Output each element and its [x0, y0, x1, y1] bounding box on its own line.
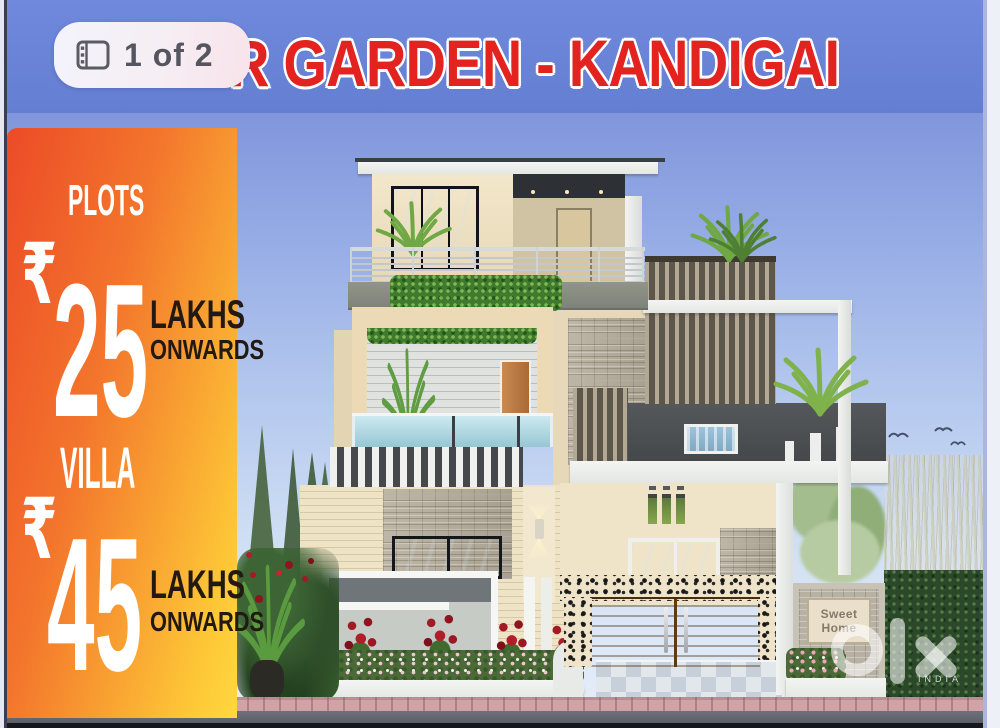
right-gutter [987, 0, 1000, 728]
olx-watermark-logo: INDIA [826, 612, 976, 692]
railing-rail [350, 269, 645, 271]
downlight [565, 190, 569, 194]
price-sidebar: PLOTS ₹ 25 LAKHS ONWARDS VILLA ₹ 45 LAKH… [7, 128, 237, 718]
offer-unit: LAKHS [150, 565, 245, 605]
white-pipe [785, 441, 794, 463]
railing-post [598, 247, 600, 285]
bird-icon [950, 439, 967, 447]
offer-note: ONWARDS [150, 336, 264, 364]
pager-label: 1 of 2 [124, 37, 214, 74]
dry-grass [884, 455, 984, 577]
bird-icon [888, 430, 910, 440]
offer-category: VILLA [60, 440, 135, 498]
offer-note: ONWARDS [150, 608, 264, 636]
niche-spotlight [649, 486, 656, 490]
glass-balustrade [352, 413, 553, 447]
olx-l [890, 618, 905, 684]
listing-image-viewer[interactable]: Sweet Home INDIA PLOTS ₹ 25 LAKHS ONWARD… [0, 0, 1000, 728]
terrace-palm [770, 342, 870, 420]
image-pager-pill[interactable]: 1 of 2 [54, 22, 250, 88]
striped-awning [330, 447, 523, 487]
offer-category: PLOTS [68, 179, 144, 223]
upper-window-right [684, 424, 738, 454]
slat-tower [645, 256, 776, 404]
balustrade-post [352, 416, 355, 447]
gate-split [674, 599, 677, 667]
roof-slab [358, 162, 658, 174]
balustrade-post [452, 416, 455, 447]
parapet-creeper [390, 275, 562, 311]
niche-plant [676, 494, 685, 524]
red-flowers [246, 552, 252, 558]
gate-handle [684, 607, 688, 653]
niche-spotlight [663, 486, 670, 490]
niche-plant [648, 494, 657, 524]
rooftop-palm [700, 212, 784, 262]
terrace-door [500, 360, 531, 416]
main-gate[interactable] [592, 597, 760, 667]
gallery-icon [70, 38, 112, 72]
planter-niches [648, 486, 692, 526]
flower-bed [298, 650, 584, 684]
road-shadow-line [7, 723, 983, 728]
planter-pot [250, 660, 284, 700]
hanging-vine [367, 328, 537, 344]
offer-amount: 45 [47, 510, 142, 700]
balustrade-post [550, 416, 553, 447]
niche-spotlight [677, 486, 684, 490]
balustrade-post [517, 416, 520, 447]
ad-title-banner: R GARDEN - KANDIGAI 1 of 2 [7, 0, 983, 113]
bird-icon [934, 425, 954, 434]
olx-o [837, 630, 877, 670]
wall-light-fixture [535, 519, 544, 539]
slat-pilaster [573, 388, 628, 463]
white-pipe [810, 433, 821, 463]
railing-rail [350, 257, 645, 259]
railing-post [350, 247, 352, 285]
railing-rail [350, 263, 645, 265]
roof-soffit [513, 174, 625, 198]
lattice-column [564, 597, 592, 667]
downlight [531, 190, 535, 194]
left-edge-line [4, 0, 7, 728]
offer-amount: 25 [53, 256, 148, 446]
offer-unit: LAKHS [150, 295, 245, 335]
project-title: R GARDEN - KANDIGAI [229, 30, 839, 96]
rupee-symbol: ₹ [21, 232, 57, 316]
downlight [599, 190, 603, 194]
niche-plant [662, 494, 671, 524]
gate-handle [664, 607, 668, 653]
feature-frame-step [329, 602, 449, 610]
lattice-column [758, 597, 778, 669]
feature-frame-grey-bar [329, 578, 491, 602]
railing-post [642, 247, 644, 285]
pergola-beam [643, 300, 852, 313]
railing-top-rail [350, 247, 645, 251]
watermark-country-label: INDIA [918, 674, 962, 684]
